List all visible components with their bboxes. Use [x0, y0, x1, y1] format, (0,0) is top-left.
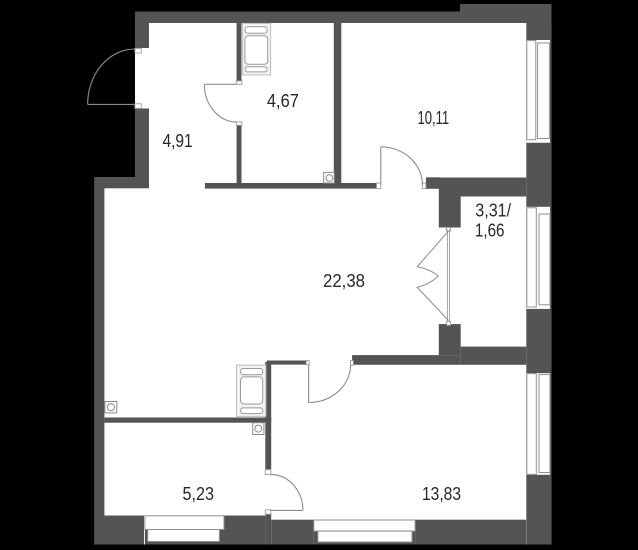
svg-text:22,38: 22,38 — [323, 271, 365, 291]
svg-text:4,91: 4,91 — [163, 131, 193, 151]
svg-text:1,66: 1,66 — [475, 220, 505, 240]
svg-text:13,83: 13,83 — [422, 484, 461, 504]
svg-text:3,31/: 3,31/ — [475, 201, 511, 221]
svg-text:10,11: 10,11 — [418, 108, 450, 128]
svg-text:4,67: 4,67 — [267, 91, 299, 111]
svg-text:5,23: 5,23 — [183, 484, 215, 504]
